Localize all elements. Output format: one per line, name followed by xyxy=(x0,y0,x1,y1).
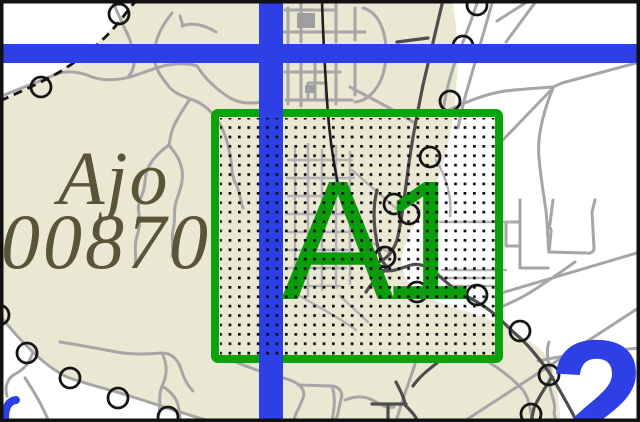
region-code-label: 00870 xyxy=(1,198,211,285)
grid-zone-label: 2 xyxy=(549,305,640,422)
map-canvas[interactable]: Ajo 00870 2 A1 xyxy=(0,0,640,422)
urban-area-stipple-overlay xyxy=(220,118,495,358)
grid-line-horizontal xyxy=(0,44,640,63)
map-viewport[interactable]: Ajo 00870 2 A1 xyxy=(0,0,640,422)
